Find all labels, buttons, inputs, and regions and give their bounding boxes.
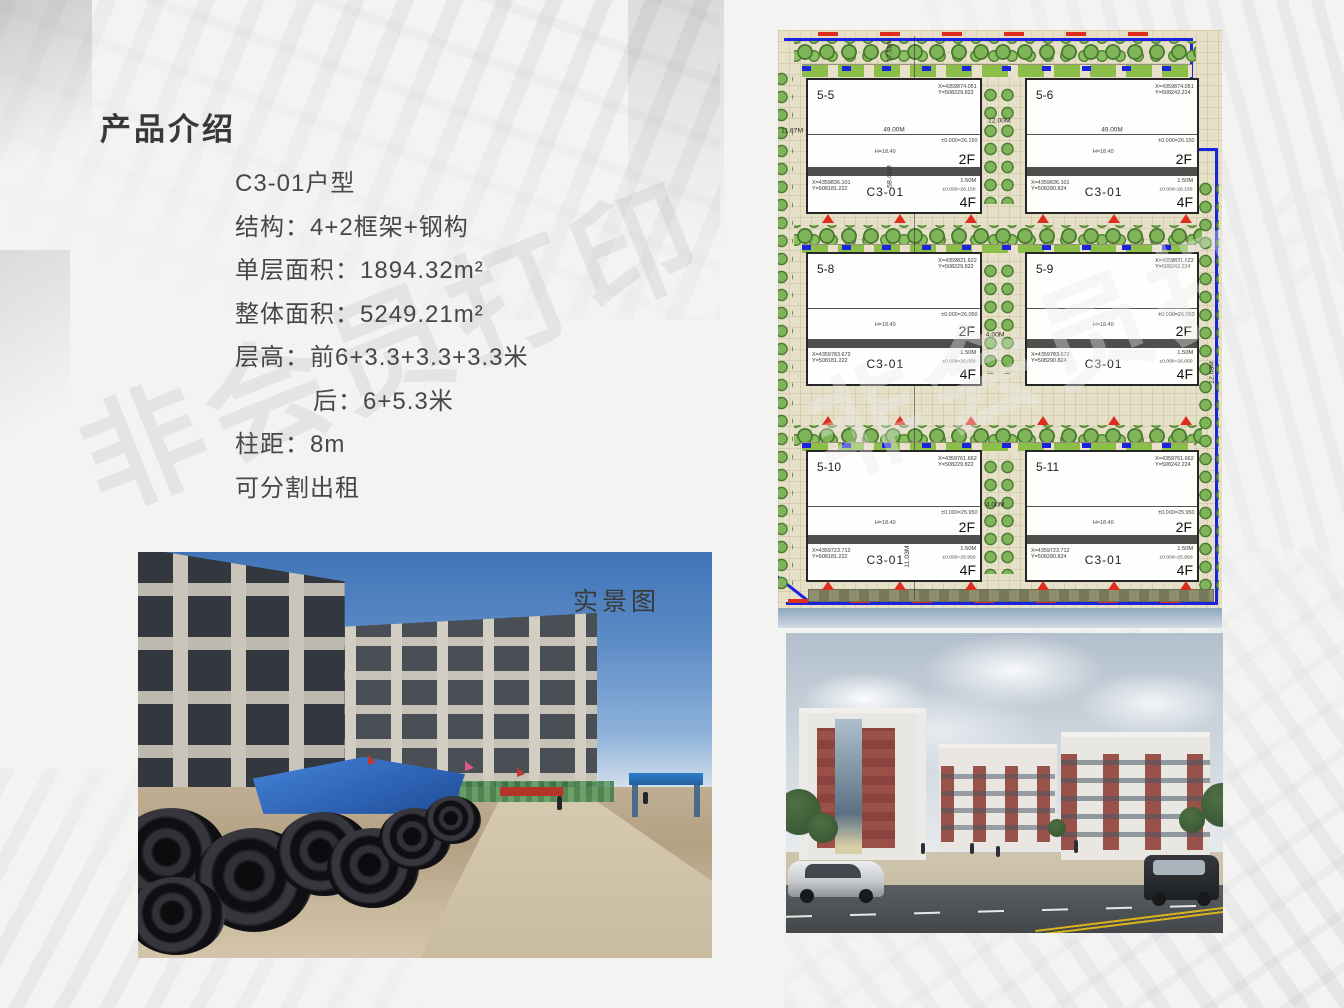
plot-side-dim: 1.50M	[960, 349, 976, 355]
render-person	[970, 843, 974, 854]
plot-width-dim: 49.00M	[1044, 126, 1180, 133]
plot-level: ±0.000=25.950	[1160, 554, 1193, 560]
plot-floors-rear: 2F	[959, 519, 975, 535]
photo-label: 实景图	[573, 582, 660, 618]
plot-side-dim: 1.50M	[1177, 177, 1193, 183]
plot-coordinates: X=4359761.662 Y=508229.822	[938, 455, 977, 467]
plot-level: ±0.000=26.050	[1159, 311, 1195, 317]
red-triangle-marker	[1108, 581, 1120, 590]
plan-blue-markers	[802, 245, 1194, 250]
render-person	[996, 846, 1000, 857]
plot-floors-rear: 2F	[1176, 151, 1192, 167]
render-window-rows	[1061, 754, 1210, 850]
render-tree	[808, 813, 838, 843]
plot-divider-band	[1027, 167, 1197, 176]
red-triangle-marker	[1180, 214, 1192, 223]
background-fragment	[0, 250, 70, 450]
render-car-suv	[1144, 855, 1218, 900]
plot-divider-band	[808, 339, 980, 348]
red-triangle-marker	[1180, 581, 1192, 590]
plot-height-note: H=18.40	[1093, 149, 1114, 155]
plan-tree-column	[1197, 180, 1219, 590]
dim-label: 17.59M	[886, 39, 894, 62]
background-fragment	[628, 0, 724, 280]
dim-label: 11.03M	[903, 545, 911, 567]
dim-label: 4.00M	[986, 331, 1005, 339]
plot-coordinates: X=4359874.051 Y=508242.224	[1155, 83, 1194, 95]
plot-id: 5-5	[817, 88, 834, 102]
red-triangle-marker	[822, 581, 834, 590]
photo-wire-coil	[425, 796, 481, 844]
plot-block-5-11: 5-11 X=4359761.662 Y=508242.224 H=18.40 …	[1025, 450, 1199, 582]
render-person	[1074, 840, 1078, 853]
plan-street-band	[778, 608, 1222, 628]
red-triangle-marker	[965, 416, 977, 425]
red-triangle-marker	[1108, 214, 1120, 223]
plan-entrance-markers	[822, 214, 1192, 223]
plot-height-note: H=18.40	[875, 322, 896, 328]
plot-coordinates: X=4359783.672 Y=508290.824	[1031, 351, 1070, 363]
plot-coordinates: X=4359723.712 Y=508290.824	[1031, 547, 1070, 559]
render-window-rows	[941, 766, 1054, 841]
plan-blue-markers	[802, 66, 1192, 71]
plot-height-note: H=18.40	[1093, 519, 1114, 525]
plot-level: ±0.000=25.950	[1159, 509, 1195, 515]
photo-person	[557, 796, 562, 810]
red-triangle-marker	[1108, 416, 1120, 425]
plot-side-dim: 1.50M	[1177, 349, 1193, 355]
plot-level: ±0.000=26.150	[1160, 186, 1193, 192]
plot-level: ±0.000=26.150	[942, 137, 978, 143]
plot-height-note: H=18.40	[1093, 322, 1114, 328]
plot-level: ±0.000=25.950	[943, 554, 976, 560]
spec-line-leasing: 可分割出租	[235, 467, 528, 511]
plot-divider-band	[808, 167, 980, 176]
red-triangle-marker	[822, 214, 834, 223]
spec-line-total-area: 整体面积：5249.21m²	[235, 293, 528, 337]
rendering-image	[786, 633, 1223, 933]
page-title: 产品介绍	[100, 104, 236, 149]
dim-label: 12.03M	[1208, 361, 1216, 384]
spec-line-unit-type: C3-01户型	[235, 162, 528, 206]
plot-unit-type: C3-01	[1085, 553, 1123, 567]
spec-line-height-front: 层高：前6+3.3+3.3+3.3米	[235, 336, 528, 380]
plot-level: ±0.000=26.050	[942, 311, 978, 317]
dim-label: 58.41M	[886, 165, 894, 188]
plan-red-dashed-line	[818, 32, 1188, 36]
render-building-right	[1061, 732, 1210, 860]
plot-level: ±0.000=26.150	[943, 186, 976, 192]
plan-tree-row	[794, 41, 1196, 64]
plan-tree-column	[778, 70, 793, 590]
plot-block-5-6: 5-6 X=4359874.051 Y=508242.224 49.00M H=…	[1025, 78, 1199, 214]
plot-unit-type: C3-01	[1085, 185, 1123, 199]
photo-site-gate	[629, 773, 704, 785]
plot-side-dim: 1.50M	[960, 177, 976, 183]
render-person	[921, 843, 925, 854]
plot-coordinates: X=4359821.622 Y=508229.822	[938, 257, 977, 269]
photo-red-banner	[500, 787, 563, 796]
red-triangle-marker	[894, 416, 906, 425]
plot-unit-type: C3-01	[866, 357, 904, 371]
photo-flag	[368, 755, 376, 765]
plot-id: 5-8	[817, 262, 834, 276]
red-triangle-marker	[822, 416, 834, 425]
render-column	[799, 713, 808, 860]
plan-tree-column	[982, 86, 1016, 204]
slide: 非会员打印 产品介绍 C3-01户型 结构：4+2框架+钢构 单层面积：1894…	[0, 0, 1344, 1008]
plot-height-note: H=18.40	[875, 149, 896, 155]
plot-height-note: H=18.40	[875, 519, 896, 525]
dim-label: 4.00M	[986, 501, 1005, 509]
plot-level: ±0.000=26.150	[1159, 137, 1195, 143]
red-triangle-marker	[1037, 416, 1049, 425]
plot-unit-type: C3-01	[866, 553, 904, 567]
plot-width-dim: 49.00M	[825, 126, 963, 133]
plot-coordinates: X=4359836.101 Y=508181.222	[812, 179, 851, 191]
plan-hedge-strip	[808, 589, 1214, 602]
plot-floors-rear: 2F	[1176, 323, 1192, 339]
plot-floors-front: 4F	[960, 367, 976, 381]
red-triangle-marker	[965, 214, 977, 223]
plot-id: 5-11	[1036, 460, 1059, 474]
plot-level: ±0.000=25.950	[942, 509, 978, 515]
render-column	[917, 713, 926, 860]
plot-divider-band	[808, 535, 980, 544]
red-triangle-marker	[1180, 416, 1192, 425]
photo-person	[643, 792, 648, 804]
plot-divider-band	[1027, 535, 1197, 544]
plan-tree-row	[794, 225, 1202, 246]
spec-line-height-rear: 后：6+5.3米	[235, 380, 528, 424]
red-triangle-marker	[1037, 581, 1049, 590]
red-triangle-marker	[894, 214, 906, 223]
photo-flag	[517, 767, 525, 777]
plot-level: ±0.000=26.050	[943, 358, 976, 364]
dim-label: 12.00M	[988, 117, 1011, 125]
plot-floors-front: 4F	[1177, 563, 1193, 577]
plot-block-5-10: 5-10 X=4359761.662 Y=508229.822 H=18.40 …	[806, 450, 982, 582]
product-specs: C3-01户型 结构：4+2框架+钢构 单层面积：1894.32m² 整体面积：…	[235, 162, 528, 510]
plot-floors-front: 4F	[960, 563, 976, 577]
plot-coordinates: X=4359761.662 Y=508242.224	[1155, 455, 1194, 467]
spec-line-column-span: 柱距：8m	[235, 423, 528, 467]
car-wheel	[1152, 892, 1166, 906]
plot-id: 5-9	[1036, 262, 1053, 276]
plot-coordinates: X=4359783.672 Y=508181.222	[812, 351, 851, 363]
plot-coordinates: X=4359874.051 Y=508229.822	[938, 83, 977, 95]
plot-floors-rear: 2F	[1176, 519, 1192, 535]
spec-line-floor-area: 单层面积：1894.32m²	[235, 249, 528, 293]
plot-floors-front: 4F	[960, 195, 976, 209]
plot-level: ±0.000=26.050	[1160, 358, 1193, 364]
plan-tree-column	[982, 262, 1016, 374]
render-car-silver	[788, 861, 884, 897]
car-wheel	[800, 889, 814, 903]
plot-divider-band	[1027, 339, 1197, 348]
plot-id: 5-10	[817, 460, 841, 474]
construction-photo: 实景图	[138, 552, 712, 958]
background-fragment	[0, 0, 92, 168]
plan-tree-column	[982, 458, 1016, 574]
plot-side-dim: 1.50M	[1177, 545, 1193, 551]
plot-floors-front: 4F	[1177, 367, 1193, 381]
red-triangle-marker	[1037, 214, 1049, 223]
plot-unit-type: C3-01	[1085, 357, 1123, 371]
plan-entrance-markers	[822, 581, 1192, 590]
plot-coordinates: X=4359723.712 Y=508181.222	[812, 547, 851, 559]
dim-label: 11.87M	[781, 127, 803, 135]
car-wheel	[859, 889, 873, 903]
red-triangle-marker	[894, 581, 906, 590]
plot-block-5-9: 5-9 X=4359821.622 Y=508242.224 H=18.40 ±…	[1025, 252, 1199, 386]
spec-line-structure: 结构：4+2框架+钢构	[235, 206, 528, 250]
render-glass-curtainwall	[835, 719, 863, 854]
plot-block-5-5: 5-5 X=4359874.051 Y=508229.822 49.00M H=…	[806, 78, 982, 214]
plot-id: 5-6	[1036, 88, 1053, 102]
plot-coordinates: X=4359821.622 Y=508242.224	[1155, 257, 1194, 269]
site-plan: 5-5 X=4359874.051 Y=508229.822 49.00M H=…	[778, 30, 1222, 628]
plot-floors-rear: 2F	[959, 323, 975, 339]
plot-block-5-8: 5-8 X=4359821.622 Y=508229.822 H=18.40 ±…	[806, 252, 982, 386]
plot-side-dim: 1.50M	[960, 545, 976, 551]
plan-blue-markers	[802, 443, 1194, 448]
plot-floors-front: 4F	[1177, 195, 1193, 209]
plot-coordinates: X=4359836.101 Y=508290.824	[1031, 179, 1070, 191]
red-triangle-marker	[965, 581, 977, 590]
render-building-middle	[939, 744, 1057, 850]
photo-flag	[465, 761, 474, 771]
plan-entrance-markers	[822, 416, 1192, 425]
plot-floors-rear: 2F	[959, 151, 975, 167]
